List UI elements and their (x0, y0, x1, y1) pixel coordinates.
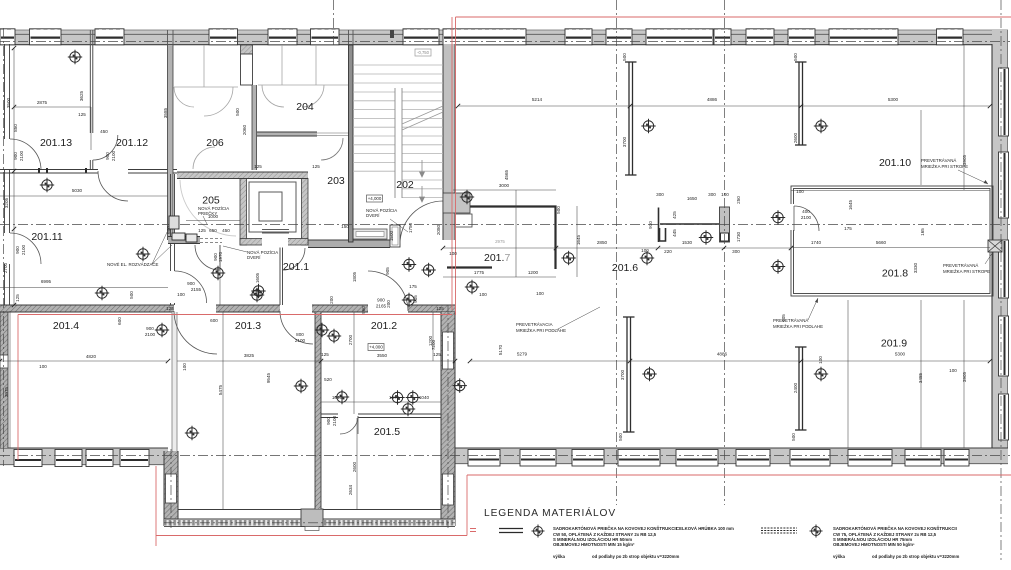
svg-text:3000: 3000 (499, 183, 510, 188)
svg-text:905: 905 (385, 267, 390, 275)
svg-text:5279: 5279 (517, 352, 528, 357)
svg-text:1730: 1730 (736, 231, 741, 242)
svg-text:3330: 3330 (913, 262, 918, 273)
svg-text:5660: 5660 (876, 240, 887, 245)
svg-text:3500: 3500 (6, 97, 11, 108)
svg-text:250: 250 (736, 196, 741, 204)
svg-text:125: 125 (254, 164, 262, 169)
svg-text:výška: výška (833, 554, 846, 559)
svg-text:201.13: 201.13 (40, 137, 72, 149)
svg-text:2975: 2975 (495, 239, 505, 244)
svg-text:125: 125 (78, 112, 86, 117)
svg-text:520: 520 (324, 377, 332, 382)
svg-text:600: 600 (210, 318, 218, 323)
svg-text:202: 202 (396, 179, 414, 191)
svg-text:7200: 7200 (431, 339, 436, 350)
svg-text:PRIEČKY: PRIEČKY (198, 211, 217, 216)
svg-text:2875: 2875 (37, 100, 48, 105)
svg-text:960: 960 (361, 306, 366, 314)
svg-text:125: 125 (198, 228, 206, 233)
svg-text:100: 100 (536, 291, 544, 296)
svg-text:100: 100 (177, 292, 185, 297)
svg-text:3700: 3700 (620, 369, 625, 380)
svg-text:PREVETRÁVACIA: PREVETRÁVACIA (516, 322, 553, 327)
svg-text:201.1: 201.1 (283, 261, 309, 273)
svg-text:DVERÍ: DVERÍ (247, 255, 261, 260)
svg-text:2165: 2165 (376, 304, 387, 309)
svg-text:1775: 1775 (474, 270, 485, 275)
svg-text:MRIEŽKA PRI PODLAHE: MRIEŽKA PRI PODLAHE (773, 324, 823, 329)
svg-text:9545: 9545 (266, 372, 271, 383)
svg-text:125: 125 (436, 306, 444, 311)
svg-text:výška: výška (553, 554, 566, 559)
svg-text:100: 100 (449, 251, 457, 256)
svg-text:201.7: 201.7 (484, 252, 510, 264)
svg-text:od podlahy po 2b strop objektu: od podlahy po 2b strop objektu v=3220mm (872, 554, 959, 559)
svg-text:od podlahy po 2b strop objektu: od podlahy po 2b strop objektu v=3220mm (592, 554, 679, 559)
svg-text:1530: 1530 (682, 240, 693, 245)
svg-text:175: 175 (409, 284, 417, 289)
svg-text:300: 300 (708, 192, 716, 197)
svg-text:100: 100 (39, 364, 47, 369)
svg-text:203: 203 (327, 175, 345, 187)
svg-text:1740: 1740 (811, 240, 822, 245)
svg-text:425: 425 (672, 211, 677, 219)
svg-text:2100: 2100 (801, 215, 812, 220)
svg-text:PREVETRÁVANÁ: PREVETRÁVANÁ (921, 158, 956, 163)
svg-text:201.12: 201.12 (116, 137, 148, 149)
svg-text:2080: 2080 (436, 224, 441, 235)
svg-text:900: 900 (105, 152, 110, 160)
svg-text:1605: 1605 (255, 272, 260, 283)
svg-text:204: 204 (296, 101, 314, 113)
svg-text:500: 500 (622, 53, 627, 61)
svg-text:445: 445 (672, 229, 677, 237)
svg-text:100: 100 (949, 368, 957, 373)
svg-text:450: 450 (100, 129, 108, 134)
svg-text:2100: 2100 (111, 150, 116, 161)
svg-text:100: 100 (818, 356, 823, 364)
svg-text:150: 150 (341, 224, 349, 229)
svg-text:1645: 1645 (848, 199, 853, 210)
svg-text:2400: 2400 (793, 382, 798, 393)
svg-text:SADROKARTÓNOVÁ PRIEČKA NA KOVO: SADROKARTÓNOVÁ PRIEČKA NA KOVOVEJ KONŠTR… (553, 526, 677, 531)
svg-text:+4,000: +4,000 (369, 345, 383, 350)
svg-text:3485: 3485 (918, 372, 923, 383)
svg-text:5170: 5170 (498, 344, 503, 355)
svg-text:910: 910 (648, 221, 653, 229)
svg-text:300: 300 (656, 192, 664, 197)
svg-text:3205: 3205 (4, 197, 9, 208)
svg-text:+4,000: +4,000 (368, 196, 382, 201)
svg-text:2600: 2600 (352, 461, 357, 472)
svg-text:201.6: 201.6 (612, 262, 638, 274)
svg-text:500: 500 (235, 108, 240, 116)
svg-text:201.4: 201.4 (53, 320, 79, 332)
svg-text:1645: 1645 (576, 234, 581, 245)
svg-text:2700: 2700 (3, 262, 8, 273)
svg-text:220: 220 (664, 249, 672, 254)
svg-text:400: 400 (802, 209, 810, 214)
svg-text:1805: 1805 (352, 271, 357, 282)
svg-text:NOVÉ EL. ROZVÁDZAČE: NOVÉ EL. ROZVÁDZAČE (107, 262, 159, 267)
svg-text:PREVETRÁVANÁ: PREVETRÁVANÁ (943, 263, 978, 268)
svg-text:4886: 4886 (707, 97, 718, 102)
svg-text:1970: 1970 (218, 251, 223, 262)
svg-text:1500: 1500 (389, 230, 394, 241)
svg-text:MRIEŽKA PRI STROPE: MRIEŽKA PRI STROPE (921, 164, 968, 169)
svg-text:500: 500 (793, 53, 798, 61)
svg-text:100: 100 (182, 363, 187, 371)
svg-text:500: 500 (556, 206, 561, 214)
svg-text:201.2: 201.2 (371, 320, 397, 332)
svg-text:4565: 4565 (504, 169, 509, 180)
svg-text:201.3: 201.3 (235, 320, 261, 332)
svg-text:850: 850 (13, 124, 18, 132)
svg-text:900: 900 (377, 298, 385, 303)
svg-text:100: 100 (796, 189, 804, 194)
svg-text:5214: 5214 (532, 97, 543, 102)
svg-text:201.9: 201.9 (881, 338, 907, 350)
svg-text:125: 125 (321, 352, 329, 357)
svg-text:2060: 2060 (242, 124, 247, 135)
svg-text:201.8: 201.8 (882, 268, 908, 280)
svg-text:5030: 5030 (72, 188, 83, 193)
svg-text:MRIEŽKA PRI STROPE: MRIEŽKA PRI STROPE (943, 269, 990, 274)
svg-text:500: 500 (129, 291, 134, 299)
svg-text:900: 900 (326, 417, 331, 425)
svg-text:3905: 3905 (962, 371, 967, 382)
svg-text:3550: 3550 (377, 353, 388, 358)
svg-text:2100: 2100 (21, 244, 26, 255)
svg-text:125: 125 (312, 164, 320, 169)
svg-text:450: 450 (222, 228, 230, 233)
svg-text:OBJEMOVEJ HMOTNOSTI MIN 50 kg/: OBJEMOVEJ HMOTNOSTI MIN 50 kg/m³ (833, 542, 915, 547)
svg-text:2600: 2600 (793, 132, 798, 143)
svg-text:500: 500 (618, 433, 623, 441)
svg-text:900: 900 (146, 326, 154, 331)
svg-text:600: 600 (117, 317, 122, 325)
svg-text:LEGENDA MATERIÁLOV: LEGENDA MATERIÁLOV (484, 506, 616, 519)
svg-text:100: 100 (479, 292, 487, 297)
svg-text:125: 125 (166, 306, 174, 311)
svg-text:205: 205 (202, 195, 220, 207)
svg-text:650: 650 (209, 228, 217, 233)
svg-text:100: 100 (721, 192, 729, 197)
svg-text:300: 300 (732, 249, 740, 254)
svg-text:-0,750: -0,750 (417, 50, 430, 55)
svg-text:3825: 3825 (244, 353, 255, 358)
svg-text:3585: 3585 (163, 107, 168, 118)
svg-text:125: 125 (433, 352, 441, 357)
svg-text:1750: 1750 (408, 222, 413, 233)
svg-text:4886: 4886 (717, 352, 728, 357)
svg-text:175: 175 (844, 226, 852, 231)
svg-text:1040: 1040 (419, 395, 430, 400)
svg-text:200: 200 (386, 300, 391, 308)
svg-text:900: 900 (15, 246, 20, 254)
svg-text:2155: 2155 (191, 287, 202, 292)
svg-text:206: 206 (206, 137, 224, 149)
svg-text:5300: 5300 (888, 97, 899, 102)
svg-text:3700: 3700 (622, 136, 627, 147)
svg-text:165: 165 (920, 228, 925, 236)
svg-text:2100: 2100 (145, 332, 156, 337)
svg-text:200: 200 (329, 296, 334, 304)
svg-text:DVERÍ: DVERÍ (366, 213, 380, 218)
svg-text:201.5: 201.5 (374, 426, 400, 438)
svg-text:900: 900 (187, 281, 195, 286)
svg-text:2100: 2100 (19, 150, 24, 161)
svg-text:500: 500 (791, 433, 796, 441)
svg-text:5475: 5475 (218, 384, 223, 395)
svg-text:3975: 3975 (4, 386, 9, 397)
svg-text:100: 100 (641, 248, 649, 253)
svg-text:OBJEMOVEJ HMOTNOSTI MIN 15 kg/: OBJEMOVEJ HMOTNOSTI MIN 15 kg/m² (553, 542, 635, 547)
svg-text:201.11: 201.11 (31, 231, 62, 243)
svg-text:201.10: 201.10 (879, 157, 911, 169)
svg-text:900: 900 (13, 152, 18, 160)
svg-text:1200: 1200 (528, 270, 539, 275)
svg-text:125: 125 (15, 294, 20, 302)
svg-text:CELKOVÁ HRÚBKA 100 mm: CELKOVÁ HRÚBKA 100 mm (676, 526, 734, 531)
svg-text:6995: 6995 (41, 279, 52, 284)
svg-text:2634: 2634 (348, 484, 353, 495)
svg-text:SADROKARTÓNOVÁ PRIEČKA NA KOVO: SADROKARTÓNOVÁ PRIEČKA NA KOVOVEJ KONŠTR… (833, 526, 957, 531)
svg-text:2700: 2700 (348, 334, 353, 345)
svg-text:1650: 1650 (687, 196, 698, 201)
svg-text:3625: 3625 (79, 90, 84, 101)
svg-text:PREVETRÁVANÁ: PREVETRÁVANÁ (773, 318, 808, 323)
svg-text:4820: 4820 (86, 354, 97, 359)
svg-text:2850: 2850 (597, 240, 608, 245)
svg-text:2100: 2100 (332, 415, 337, 426)
svg-text:5300: 5300 (895, 352, 906, 357)
svg-text:800: 800 (296, 332, 304, 337)
svg-text:2100: 2100 (295, 338, 306, 343)
